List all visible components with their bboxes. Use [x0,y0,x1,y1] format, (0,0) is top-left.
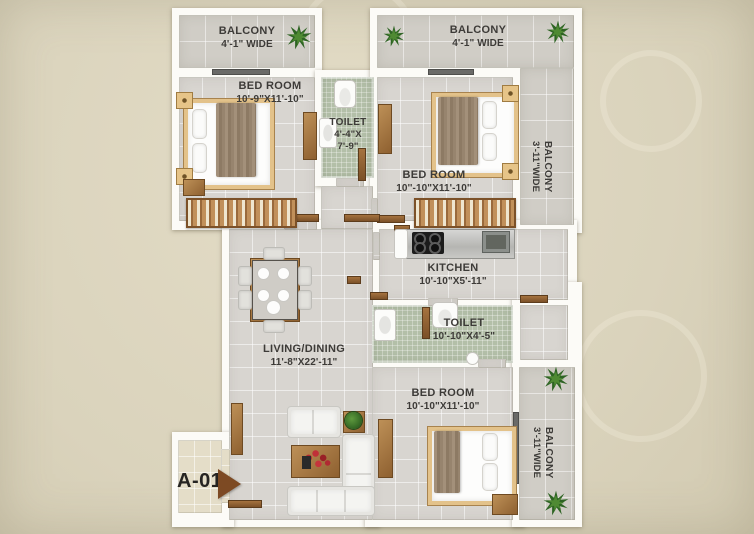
floor-hallway [321,186,373,229]
wardrobe-top-right [414,198,516,228]
room-name: BED ROOM [210,79,330,93]
dresser [378,104,392,154]
room-name: BALCONY [541,112,554,222]
room-dims: 4'-1" WIDE [183,38,311,51]
door-gap-bedroom-bottom [478,359,506,368]
label-kitchen: KITCHEN 10'-10"X5'-11" [394,261,512,288]
dining-chair [298,290,312,310]
wardrobe-top-left [186,198,297,228]
room-dims: 10'-10"X5'-11" [394,275,512,288]
dining-chair [238,266,252,286]
room-name: LIVING/DINING [233,342,375,356]
dresser [303,112,317,160]
nightstand [183,179,205,196]
dining-chair [263,320,285,333]
plate [277,289,290,302]
nightstand [492,494,518,515]
blanket [216,103,256,177]
room-dims: 7'-9" [322,141,374,153]
room-name: BALCONY [402,23,554,37]
toilet-wc [334,80,356,108]
room-name: BED ROOM [375,168,493,182]
room-dims: 4'-1" WIDE [402,37,554,50]
pillow [482,433,498,461]
bed-post [176,92,193,109]
room-dims: 10''-10"X11'-10" [375,182,493,195]
room-dims: 10'-10"X4'-5" [408,330,520,343]
label-bedroom-top-left: BED ROOM 10'-9"X11'-10" [210,79,330,106]
pillow [482,101,497,129]
balcony-window-top-right [428,69,474,75]
label-bedroom-top-right: BED ROOM 10''-10"X11'-10" [375,168,493,195]
label-balcony-top-left: BALCONY 4'-1" WIDE [183,24,311,51]
toilet-sink [374,309,396,341]
blanket [438,97,478,165]
burner [416,244,424,252]
room-dims: 3'-11"WIDE [530,398,542,508]
label-living-dining: LIVING/DINING 11'-8"X22'-11" [233,342,375,369]
label-balcony-right-lower: BALCONY 3'-11"WIDE [523,398,555,508]
dining-chair [263,247,285,260]
potted-plant-icon [345,412,362,429]
room-dims: 3'-11"WIDE [529,112,541,222]
wall-shelf [520,295,548,303]
wall-shelf [347,276,361,284]
label-toilet-middle: TOILET 10'-10"X4'-5" [408,316,520,343]
plate [257,289,270,302]
bed-post [502,85,519,102]
floor-utility-passage [520,305,568,360]
room-dims: 11'-8"X22'-11" [233,356,375,369]
blanket [434,431,460,493]
burner [431,244,439,252]
label-balcony-right-upper: BALCONY 3'-11"WIDE [522,112,554,222]
balcony-window-top-left [212,69,270,75]
unit-number-label: A-01 [177,470,222,493]
label-bedroom-bottom: BED ROOM 10'-10"X11'-10" [383,386,503,413]
room-dims: 10'-10"X11'-10" [383,400,503,413]
dresser [378,419,393,478]
bed-top-left [184,99,274,189]
room-name: BALCONY [542,398,555,508]
label-toilet-top: TOILET 4'-4"X 7'-9" [322,116,374,154]
wall-shelf [370,292,388,300]
room-name: BALCONY [183,24,311,38]
burner [416,235,424,243]
pillow [192,109,207,139]
background-swirl-decoration [575,310,707,442]
burner [431,235,439,243]
stove-icon [412,232,444,254]
sofa-three-seater [287,486,375,516]
room-dims: 10'-9"X11'-10" [210,93,330,106]
pillow [482,133,497,161]
dining-chair [298,266,312,286]
room-name: TOILET [322,116,374,129]
floor-plan: BALCONY 4'-1" WIDE BALCONY 4'-1" WIDE BA… [0,0,754,534]
pillow [192,143,207,173]
kitchen-sink [482,231,510,253]
tv-console [231,403,243,455]
pillow [482,463,498,491]
door-bedroom-top-right [377,215,405,223]
plate [257,267,270,280]
door-entrance [228,500,262,508]
sofa-two-seater [287,406,341,438]
room-name: TOILET [408,316,520,330]
bed-post [502,163,519,180]
room-dims: 4'-4"X [322,129,374,141]
plate [277,267,290,280]
background-swirl-decoration [600,50,702,152]
entrance-arrow-icon [218,469,241,499]
plate [266,300,281,315]
kitchen-appliance [394,229,408,259]
hall-console [344,214,380,222]
sink-basin [486,235,506,249]
room-name: BED ROOM [383,386,503,400]
table-decor [302,456,311,469]
room-name: KITCHEN [394,261,512,275]
dining-chair [238,290,252,310]
door-gap-kitchen [373,232,380,260]
plant-icon [543,366,569,392]
floor-drain [466,352,479,365]
label-balcony-top-right: BALCONY 4'-1" WIDE [402,23,554,50]
